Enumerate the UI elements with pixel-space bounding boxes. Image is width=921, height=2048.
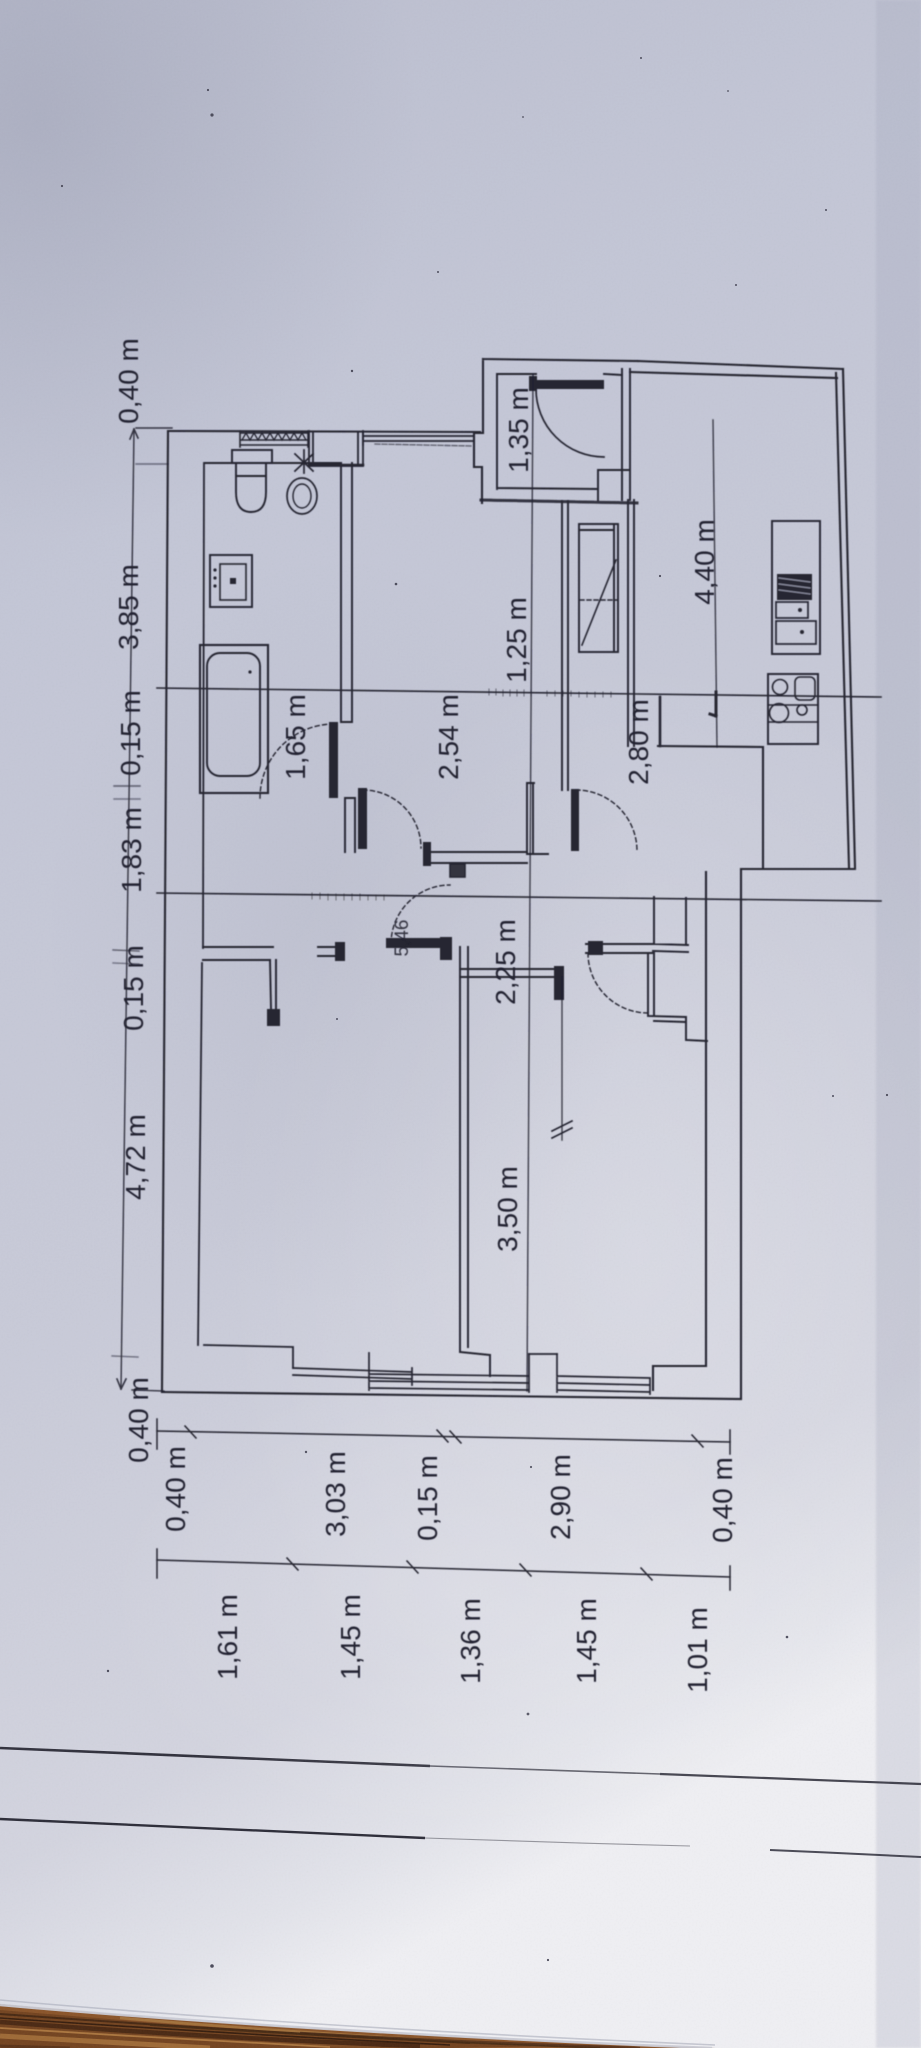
svg-text:0,15 m: 0,15 m — [115, 690, 146, 776]
svg-text:2,90 m: 2,90 m — [545, 1454, 576, 1540]
svg-text:1,61 m: 1,61 m — [212, 1594, 243, 1680]
svg-text:0,40 m: 0,40 m — [160, 1446, 191, 1532]
svg-text:3,50 m: 3,50 m — [492, 1166, 523, 1252]
svg-text:1,35 m: 1,35 m — [503, 387, 534, 473]
svg-text:1,36 m: 1,36 m — [455, 1598, 486, 1684]
svg-text:0,40 m: 0,40 m — [707, 1457, 738, 1543]
svg-text:0,15 m: 0,15 m — [118, 945, 149, 1031]
svg-text:3,03 m: 3,03 m — [320, 1451, 351, 1537]
svg-text:3,85 m: 3,85 m — [113, 564, 144, 650]
svg-text:1,45 m: 1,45 m — [571, 1598, 602, 1684]
svg-text:1,01 m: 1,01 m — [682, 1607, 713, 1693]
svg-text:1,65 m: 1,65 m — [280, 694, 311, 780]
svg-text:4,72 m: 4,72 m — [120, 1114, 151, 1200]
svg-text:2,54 m: 2,54 m — [433, 694, 464, 780]
svg-text:0,15 m: 0,15 m — [412, 1455, 443, 1541]
svg-text:0,40 m: 0,40 m — [123, 1377, 154, 1463]
svg-text:5,46: 5,46 — [392, 920, 413, 957]
svg-text:1,25 m: 1,25 m — [501, 597, 532, 683]
svg-text:4,40 m: 4,40 m — [689, 519, 720, 605]
svg-text:2,25 m: 2,25 m — [490, 919, 521, 1005]
svg-text:2,80 m: 2,80 m — [623, 699, 654, 785]
svg-text:0,40 m: 0,40 m — [113, 338, 144, 424]
svg-text:1,45 m: 1,45 m — [335, 1594, 366, 1680]
svg-text:1,83 m: 1,83 m — [116, 807, 147, 893]
